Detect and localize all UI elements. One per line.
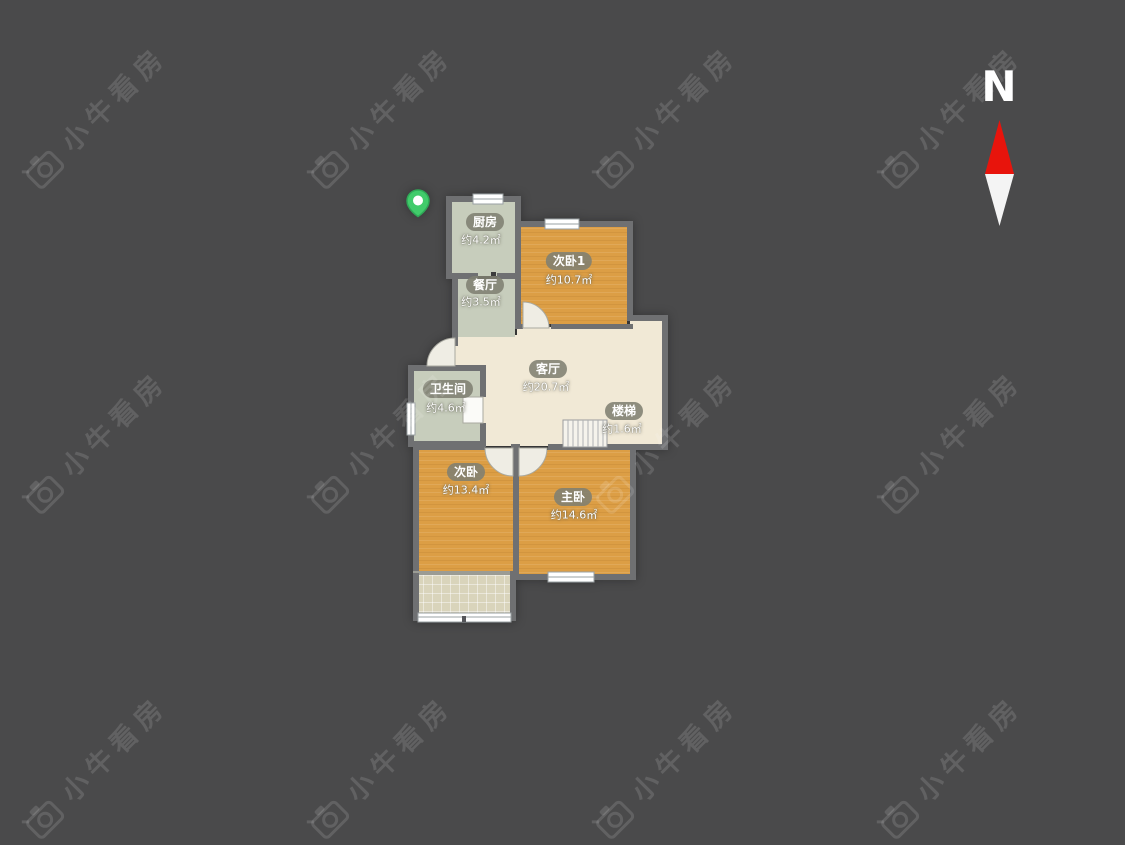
floorplan: 厨房 约4.2㎡ 餐厅 约3.5㎡ 次卧1 约10.7㎡ 客厅 约20.7㎡ 卫… (405, 188, 705, 633)
camera-logo-icon (302, 792, 353, 843)
room-area-living: 约20.7㎡ (523, 382, 570, 393)
camera-logo-icon (587, 792, 638, 843)
balcony-floor (419, 573, 511, 615)
watermark-tile: 小牛看房 (15, 360, 174, 519)
camera-logo-icon (302, 467, 353, 518)
watermark-text: 小牛看房 (621, 35, 745, 159)
watermark-text: 小牛看房 (906, 360, 1030, 484)
watermark-text: 小牛看房 (336, 35, 460, 159)
camera-logo-icon (17, 467, 68, 518)
room-area-master: 约14.6㎡ (551, 510, 598, 521)
room-label-kitchen: 厨房 (466, 213, 504, 231)
location-pin-icon (405, 188, 431, 218)
watermark-tile: 小牛看房 (300, 685, 459, 844)
room-label-dining: 餐厅 (466, 276, 504, 294)
watermark-tile: 小牛看房 (870, 685, 1029, 844)
watermark-text: 小牛看房 (906, 685, 1030, 809)
screenshot-root: { "page": { "background_color": "#4a4a4b… (0, 0, 1125, 844)
room-area-bedroom2: 约13.4㎡ (443, 485, 490, 496)
room-area-bathroom: 约4.6㎡ (426, 403, 466, 414)
watermark-tile: 小牛看房 (15, 685, 174, 844)
camera-logo-icon (872, 792, 923, 843)
watermark-text: 小牛看房 (336, 685, 460, 809)
room-label-bathroom: 卫生间 (423, 380, 473, 398)
camera-logo-icon (872, 142, 923, 193)
watermark-text: 小牛看房 (51, 35, 175, 159)
room-area-kitchen: 约4.2㎡ (461, 235, 501, 246)
camera-logo-icon (17, 142, 68, 193)
room-label-bedroom2-1: 次卧1 (546, 252, 592, 270)
watermark-tile: 小牛看房 (300, 35, 459, 194)
room-area-bedroom2-1: 约10.7㎡ (546, 275, 593, 286)
compass: N (969, 66, 1029, 228)
room-area-dining: 约3.5㎡ (461, 297, 501, 308)
camera-logo-icon (872, 467, 923, 518)
watermark-tile: 小牛看房 (870, 360, 1029, 519)
watermark-tile: 小牛看房 (585, 35, 744, 194)
watermark-text: 小牛看房 (51, 685, 175, 809)
camera-logo-icon (302, 142, 353, 193)
watermark-tile: 小牛看房 (585, 685, 744, 844)
watermark-text: 小牛看房 (621, 685, 745, 809)
camera-logo-icon (587, 142, 638, 193)
stairs-steps (563, 420, 607, 447)
room-label-living: 客厅 (529, 360, 567, 378)
camera-logo-icon (17, 792, 68, 843)
compass-needle-icon (983, 116, 1016, 228)
watermark-text: 小牛看房 (51, 360, 175, 484)
compass-north-label: N (969, 66, 1029, 108)
room-label-master: 主卧 (554, 488, 592, 506)
entry-door-arc (427, 338, 455, 366)
room-label-stairs: 楼梯 (605, 402, 643, 420)
watermark-tile: 小牛看房 (15, 35, 174, 194)
room-label-bedroom2: 次卧 (447, 463, 485, 481)
room-area-stairs: 约1.6㎡ (602, 424, 642, 435)
